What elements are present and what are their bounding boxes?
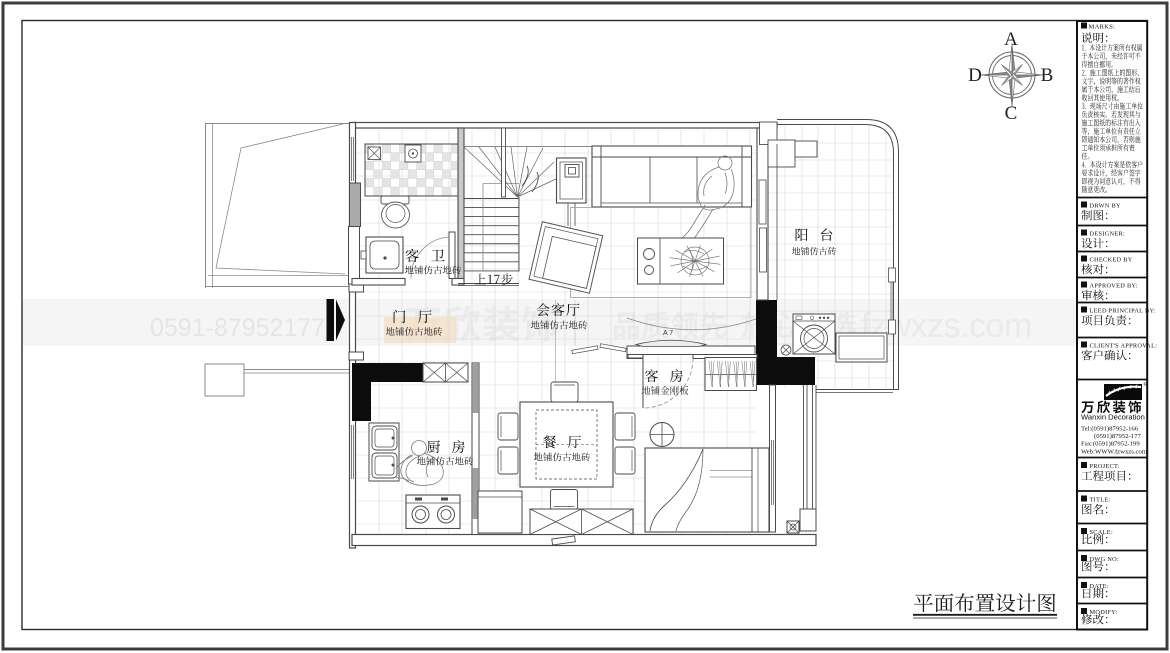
svg-text:DATE:: DATE:: [1090, 583, 1109, 590]
svg-text:A: A: [1004, 29, 1018, 50]
svg-text:D: D: [968, 65, 982, 86]
svg-text:Fax:(0591)87952-199: Fax:(0591)87952-199: [1081, 441, 1140, 448]
svg-text:B: B: [1041, 65, 1054, 86]
svg-text:APPROVED BY:: APPROVED BY:: [1090, 283, 1138, 290]
svg-text:DWG NO:: DWG NO:: [1090, 556, 1120, 563]
svg-text:DRWN BY: DRWN BY: [1090, 203, 1121, 210]
svg-text:Tel:(0591)87952-166: Tel:(0591)87952-166: [1081, 426, 1139, 433]
svg-text:(0591)87952-177: (0591)87952-177: [1094, 433, 1141, 440]
svg-text:SCALE:: SCALE:: [1090, 529, 1114, 536]
svg-text:A 7: A 7: [663, 330, 673, 337]
svg-text:C: C: [1005, 103, 1018, 124]
svg-text:CHECKED BY: CHECKED BY: [1090, 257, 1133, 264]
svg-text:LEED PRINCIPAL BY:: LEED PRINCIPAL BY:: [1090, 308, 1156, 315]
svg-text:MARKS:: MARKS:: [1089, 24, 1116, 31]
svg-text:PROJECT:: PROJECT:: [1090, 463, 1120, 470]
svg-text:MODIFY:: MODIFY:: [1090, 609, 1118, 616]
svg-text:CLIENT'S APPROVAL:: CLIENT'S APPROVAL:: [1090, 343, 1158, 350]
svg-text:DESIGNER:: DESIGNER:: [1090, 231, 1126, 238]
svg-text:TITLE:: TITLE:: [1090, 497, 1111, 504]
svg-text:Wanxin Decoration: Wanxin Decoration: [1081, 413, 1145, 422]
svg-text:Web:WWW.fzwxzs.com: Web:WWW.fzwxzs.com: [1081, 449, 1148, 456]
svg-text:0591-87952177: 0591-87952177: [150, 314, 325, 342]
svg-text:®: ®: [1143, 382, 1147, 388]
